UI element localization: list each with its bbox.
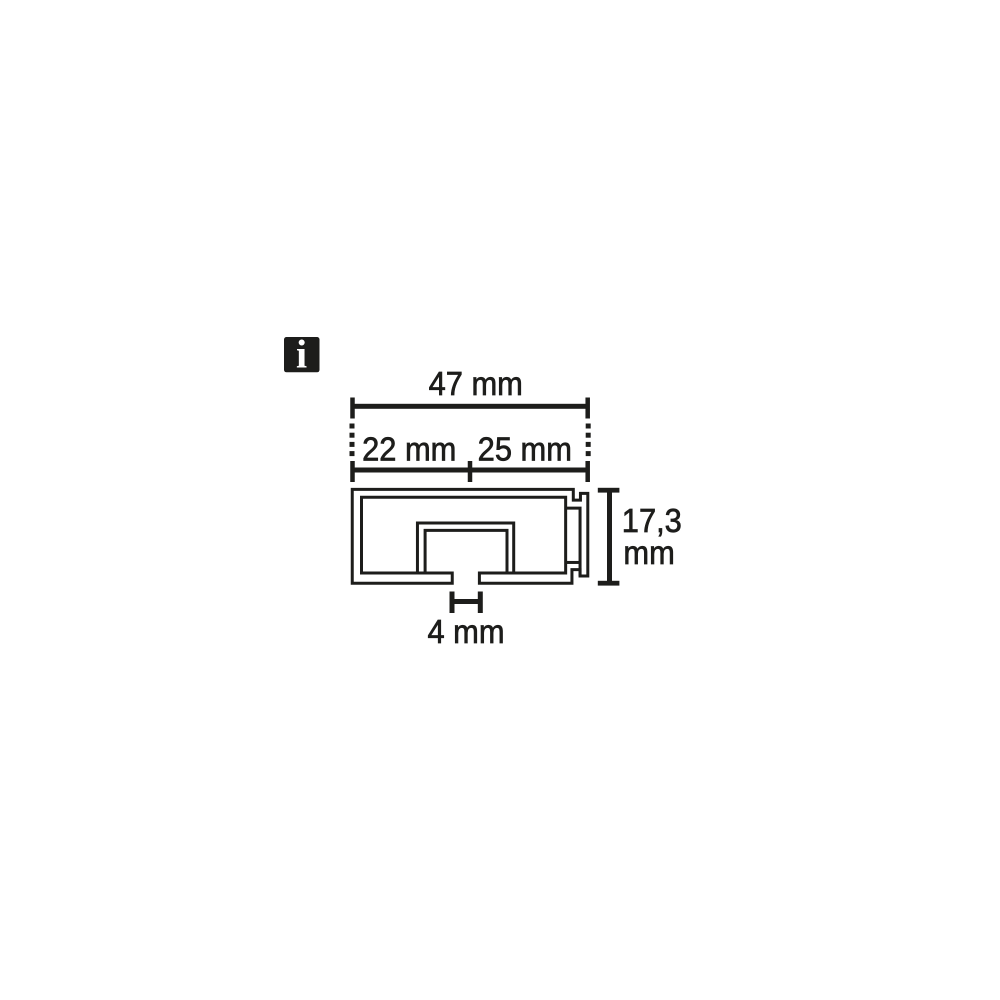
svg-text:mm: mm bbox=[623, 534, 674, 571]
svg-text:i: i bbox=[296, 332, 307, 377]
svg-text:47 mm: 47 mm bbox=[429, 365, 523, 402]
svg-text:4 mm: 4 mm bbox=[427, 613, 504, 650]
svg-text:22 mm: 22 mm bbox=[362, 431, 456, 468]
svg-text:25 mm: 25 mm bbox=[478, 431, 572, 468]
